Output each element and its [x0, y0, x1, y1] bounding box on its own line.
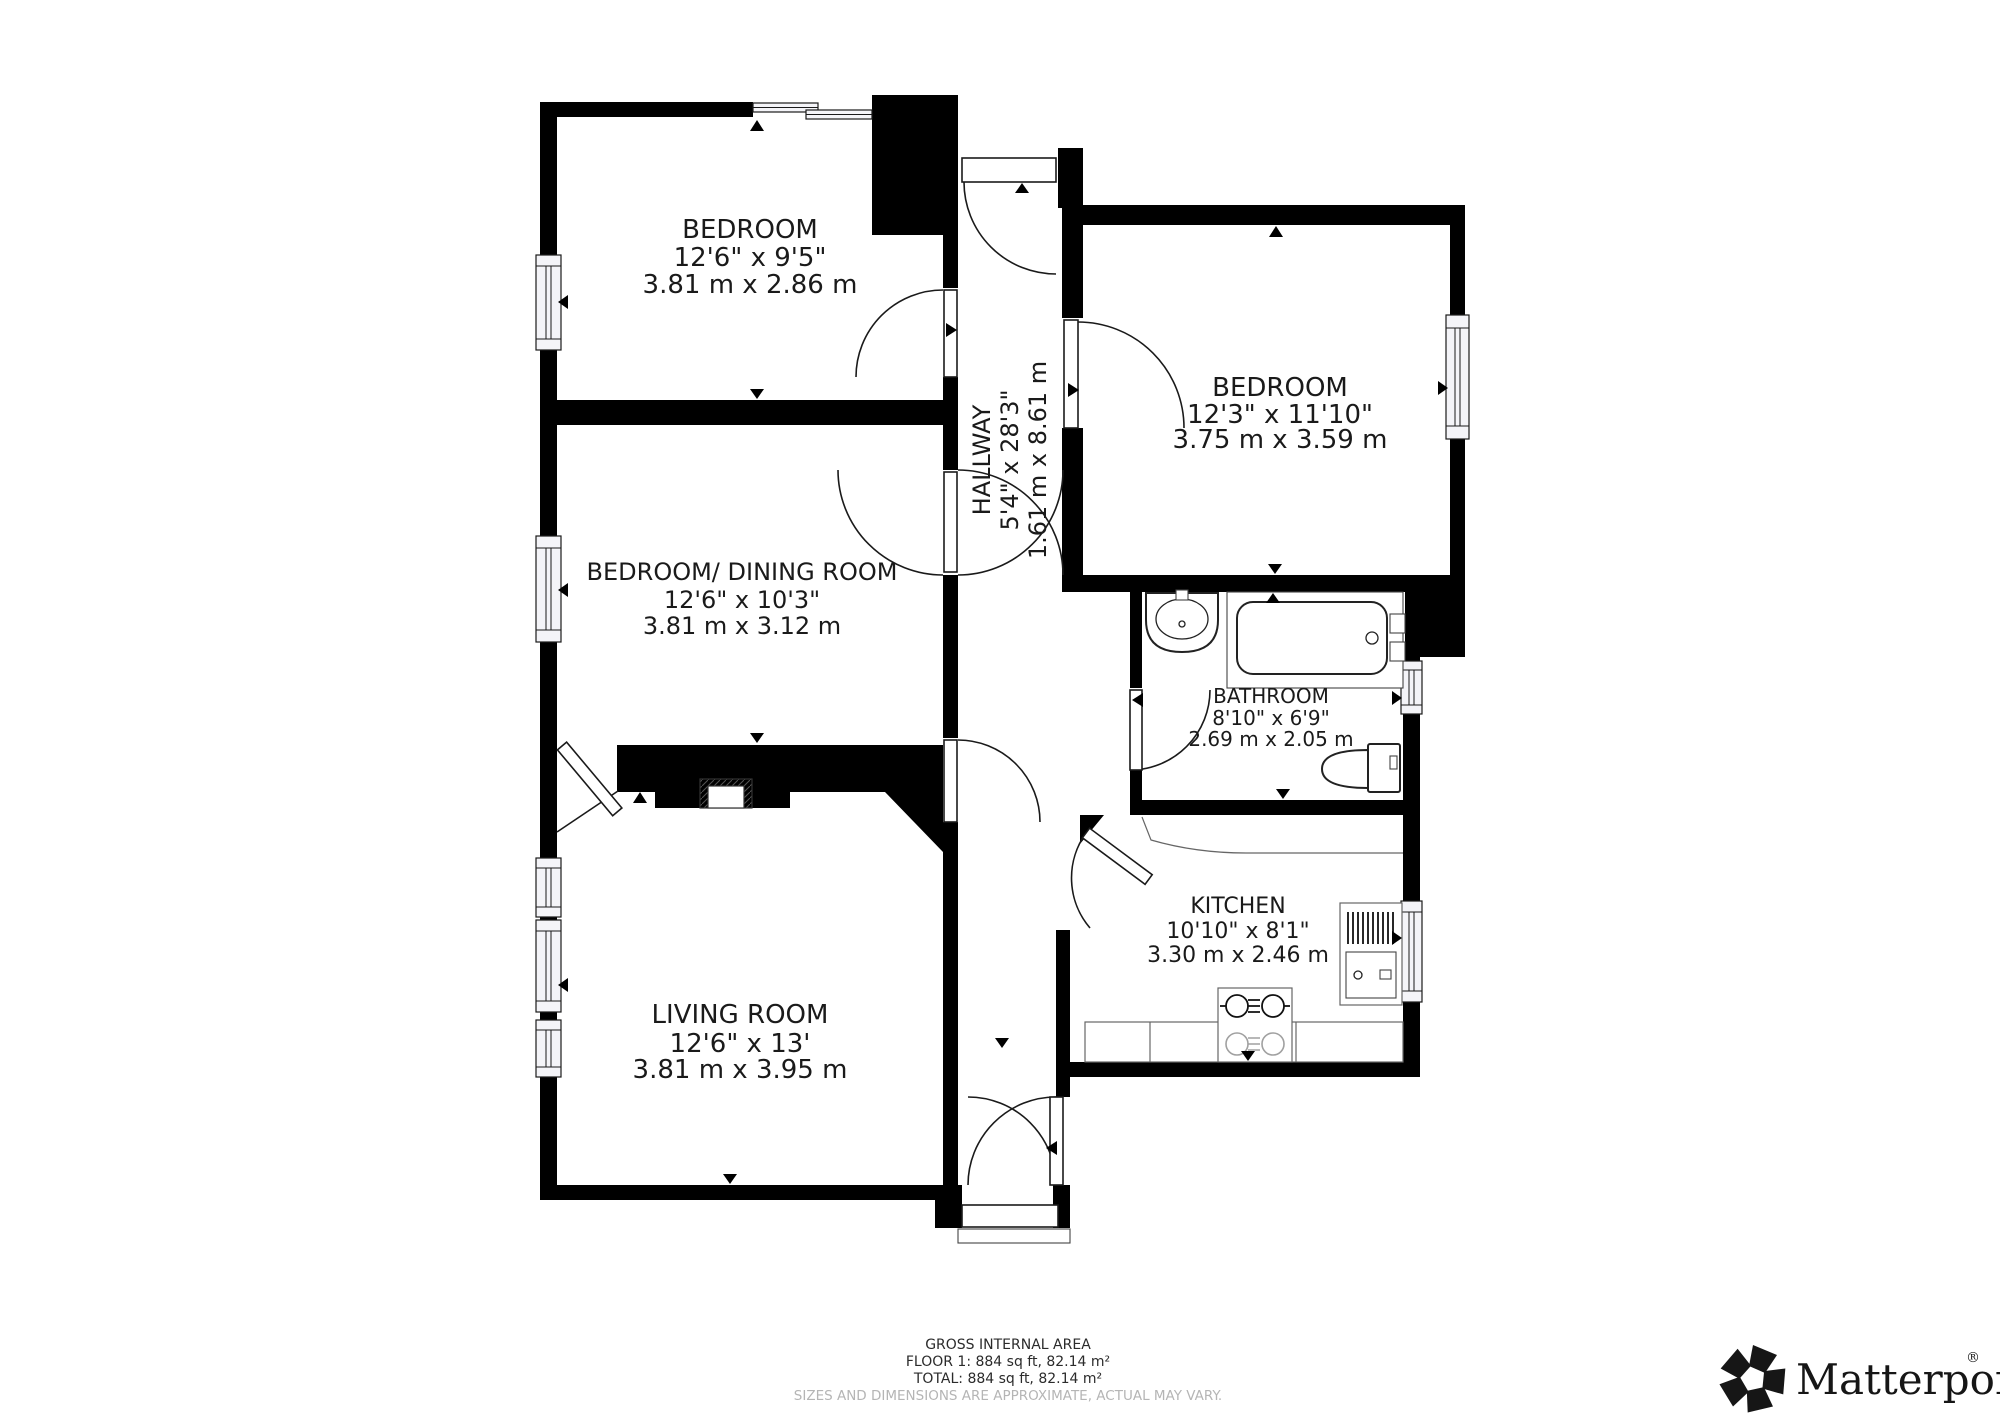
window — [536, 536, 561, 642]
matterport-pinwheel-icon — [1714, 1345, 1793, 1415]
sink — [1146, 590, 1218, 652]
svg-text:2.69 m x 2.05 m: 2.69 m x 2.05 m — [1188, 727, 1353, 751]
front-door — [962, 158, 1056, 274]
svg-text:5'4" x 28'3": 5'4" x 28'3" — [996, 389, 1024, 530]
bedroom2-door — [1064, 320, 1184, 428]
svg-text:HALLWAY: HALLWAY — [968, 404, 996, 515]
window — [536, 858, 561, 917]
window — [536, 255, 561, 350]
total-area: TOTAL: 884 sq ft, 82.14 m² — [913, 1371, 1102, 1387]
svg-text:3.81 m x 2.86 m: 3.81 m x 2.86 m — [643, 270, 858, 300]
svg-text:1.61 m x 8.61 m: 1.61 m x 8.61 m — [1024, 361, 1052, 559]
matterport-logo: Matterport ® — [1714, 1345, 2000, 1415]
floor-plan-drawing: BEDROOM 12'6" x 9'5" 3.81 m x 2.86 m BED… — [0, 0, 2000, 1415]
svg-text:BEDROOM: BEDROOM — [682, 215, 818, 245]
svg-text:3.81 m x 3.95 m: 3.81 m x 3.95 m — [633, 1055, 848, 1085]
svg-text:BEDROOM: BEDROOM — [1212, 373, 1348, 403]
label-bedroom-2: BEDROOM 12'3" x 11'10" 3.75 m x 3.59 m — [1173, 373, 1388, 455]
label-hallway: HALLWAY 5'4" x 28'3" 1.61 m x 8.61 m — [968, 361, 1052, 559]
svg-text:10'10" x 8'1": 10'10" x 8'1" — [1166, 919, 1309, 944]
svg-text:12'6" x 9'5": 12'6" x 9'5" — [674, 243, 827, 273]
counter-top — [1142, 817, 1403, 853]
label-living-room: LIVING ROOM 12'6" x 13' 3.81 m x 3.95 m — [633, 1000, 848, 1085]
refrigerator — [1340, 903, 1402, 1005]
floor-plan-page: BEDROOM 12'6" x 9'5" 3.81 m x 2.86 m BED… — [0, 0, 2000, 1415]
entrance-door — [958, 1205, 1070, 1243]
svg-text:12'6" x 10'3": 12'6" x 10'3" — [664, 586, 820, 614]
svg-text:BEDROOM/ DINING ROOM: BEDROOM/ DINING ROOM — [587, 558, 898, 586]
window — [1401, 661, 1422, 714]
label-bedroom-dining: BEDROOM/ DINING ROOM 12'6" x 10'3" 3.81 … — [587, 558, 898, 640]
living-room-door — [944, 740, 1040, 822]
bathtub — [1227, 592, 1405, 688]
window — [536, 1020, 561, 1077]
svg-text:3.81 m x 3.12 m: 3.81 m x 3.12 m — [643, 612, 841, 640]
floor1-area: FLOOR 1: 884 sq ft, 82.14 m² — [906, 1354, 1110, 1370]
svg-text:LIVING ROOM: LIVING ROOM — [652, 1000, 829, 1030]
svg-text:3.75 m x 3.59 m: 3.75 m x 3.59 m — [1173, 425, 1388, 455]
window — [1401, 901, 1422, 1002]
fireplace — [700, 779, 752, 808]
label-bathroom: BATHROOM 8'10" x 6'9" 2.69 m x 2.05 m — [1188, 684, 1353, 751]
svg-text:3.30 m x 2.46 m: 3.30 m x 2.46 m — [1147, 943, 1329, 968]
svg-text:KITCHEN: KITCHEN — [1190, 894, 1285, 919]
label-kitchen: KITCHEN 10'10" x 8'1" 3.30 m x 2.46 m — [1147, 894, 1329, 968]
bedroom1-door — [856, 290, 957, 377]
disclaimer: SIZES AND DIMENSIONS ARE APPROXIMATE, AC… — [794, 1388, 1222, 1404]
svg-text:BATHROOM: BATHROOM — [1213, 684, 1329, 708]
toilet — [1322, 744, 1400, 792]
label-bedroom-1: BEDROOM 12'6" x 9'5" 3.81 m x 2.86 m — [643, 215, 858, 300]
internal-angled-door — [557, 742, 622, 832]
kitchen-door — [1072, 828, 1153, 928]
window — [536, 920, 561, 1012]
registered-trademark-symbol: ® — [1966, 1350, 1980, 1366]
footer-area-summary: GROSS INTERNAL AREA FLOOR 1: 884 sq ft, … — [794, 1337, 1222, 1404]
gross-internal-area-title: GROSS INTERNAL AREA — [925, 1337, 1091, 1353]
window-band — [753, 103, 872, 119]
vestibule-door — [968, 1097, 1063, 1185]
stove — [1218, 988, 1292, 1062]
window — [1446, 315, 1469, 439]
